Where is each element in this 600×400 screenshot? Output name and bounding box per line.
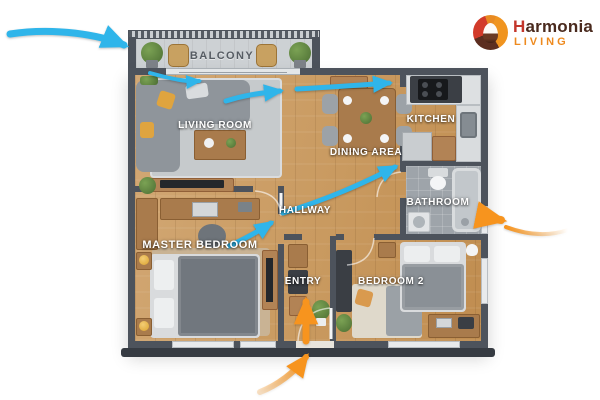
room-label-bedroom-2: BEDROOM 2 (348, 276, 434, 287)
plate-1 (343, 96, 352, 105)
bathroom-vent-window (481, 206, 488, 234)
coffee-table (194, 130, 246, 160)
dining-chair-2 (322, 126, 338, 146)
wall-entry-top (284, 234, 302, 240)
burner-1 (422, 82, 428, 88)
room-label-balcony: BALCONY (182, 50, 262, 62)
bathtub-drain (461, 218, 469, 226)
plate-2 (380, 96, 389, 105)
master-bedroom-window-2 (240, 341, 276, 348)
balcony-railing (128, 30, 320, 39)
wall-bedroom2-top-left (336, 234, 344, 240)
brand-name: Harmonia (513, 17, 593, 37)
desk-books (238, 202, 252, 212)
washer-door (413, 216, 425, 228)
room-label-kitchen: KITCHEN (400, 114, 462, 125)
living-side-plant (139, 177, 156, 194)
toilet-bowl (430, 176, 446, 190)
room-label-dining-area: DINING AREA (320, 147, 412, 158)
double-bed-pillow-2 (434, 246, 460, 262)
entry-shoe-bench (289, 296, 307, 316)
plate-3 (343, 134, 352, 143)
double-bed-pillow-1 (404, 246, 430, 262)
windowsill-greenery (140, 76, 158, 85)
entry-plant (312, 300, 330, 320)
entry-door-opening (296, 341, 334, 348)
dining-centerpiece (360, 112, 372, 124)
laptop (192, 202, 218, 217)
room-label-entry: ENTRY (277, 276, 329, 287)
sofa-pillow-yellow-2 (140, 122, 154, 138)
bedroom2-nightstand (378, 242, 396, 258)
harmonia-logo-icon (473, 15, 508, 50)
wall-master-entry (278, 244, 284, 341)
brand-tagline: LIVING (514, 36, 569, 48)
brand-name-rest: armonia (525, 17, 593, 36)
kitchen-sink (460, 112, 477, 138)
lamp-1 (139, 255, 149, 265)
balcony-wall-left (128, 37, 136, 70)
logo-droplet-icon (483, 23, 498, 43)
balcony-sliding-door (166, 68, 300, 75)
balcony-wall-right (312, 37, 320, 70)
burner-3 (422, 91, 428, 97)
entry-cabinet-1 (288, 244, 308, 268)
lamp-2 (139, 321, 149, 331)
wall-base-shadow (121, 348, 495, 357)
room-label-bathroom: BATHROOM (404, 197, 472, 208)
master-pillow-2 (154, 298, 174, 328)
master-pillow-1 (154, 260, 174, 290)
coffee-table-plant (226, 138, 236, 148)
bedroom2-laptop (436, 318, 452, 328)
plate-4 (380, 134, 389, 143)
airflow-in-arrow-balcony (10, 31, 124, 45)
room-label-hallway: HALLWAY (269, 205, 341, 216)
master-bedroom-window (172, 341, 234, 348)
room-label-living-room: LIVING ROOM (165, 120, 265, 131)
tv-screen (160, 180, 224, 188)
brand-name-initial: H (513, 17, 525, 36)
bedroom2-desk-item (458, 317, 474, 329)
balcony-pot-right (294, 60, 306, 68)
room-label-master-bedroom: MASTER BEDROOM (138, 239, 262, 251)
kitchen-cabinet (432, 136, 456, 161)
burner-4 (436, 91, 442, 97)
dining-chair-1 (322, 94, 338, 114)
entry-plant-pot (316, 318, 326, 326)
bedroom2-side-window (481, 258, 488, 304)
balcony-pot-left (146, 60, 158, 68)
floorplan-graphic: Harmonia LIVING (0, 0, 600, 400)
bedroom2-plant (336, 314, 352, 332)
master-blanket (178, 256, 258, 336)
airflow-out-tail (506, 227, 568, 234)
coffee-table-tray (204, 138, 214, 148)
airflow-arrow-entry-outer (260, 357, 306, 392)
bedroom2-window (388, 341, 460, 348)
double-bed-blanket (402, 264, 464, 310)
wall-bedroom2-top (374, 234, 481, 240)
burner-2 (436, 82, 442, 88)
master-tv (266, 258, 273, 302)
rooster-decor (466, 244, 478, 256)
